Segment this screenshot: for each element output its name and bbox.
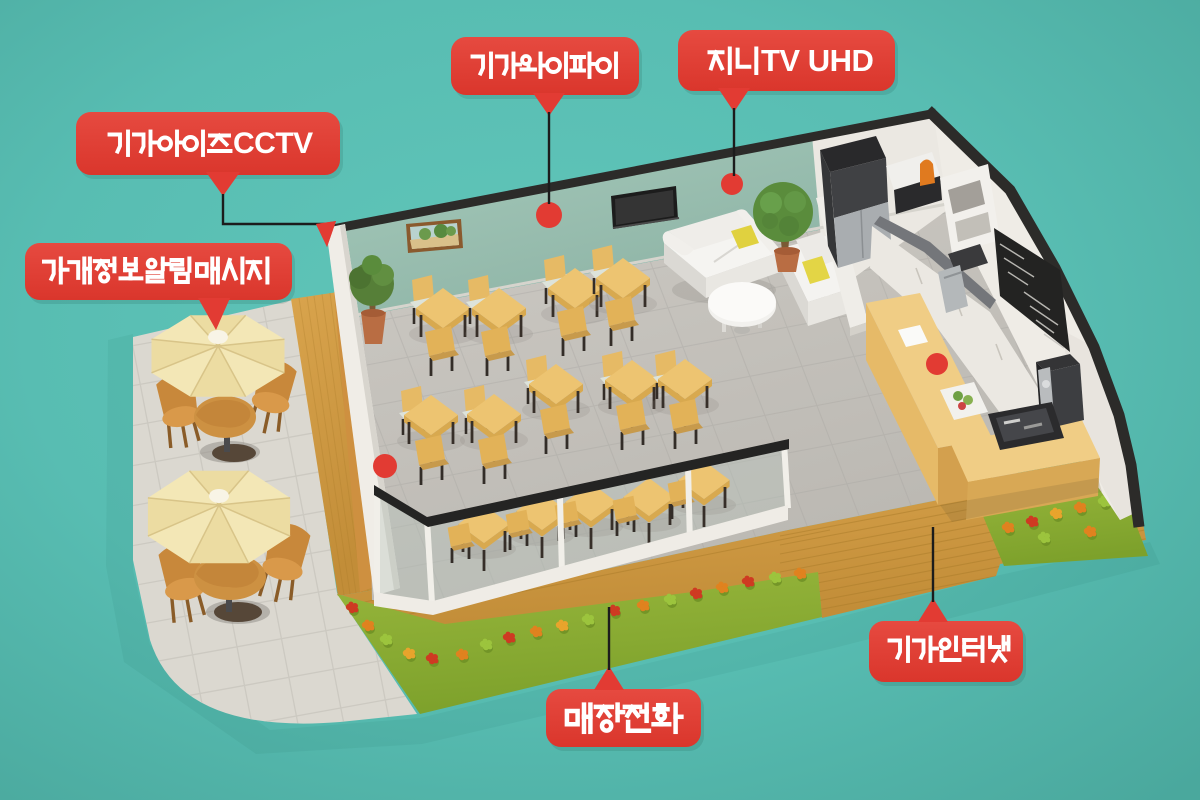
svg-text:CCTV: CCTV (233, 127, 313, 160)
svg-text:TV UHD: TV UHD (761, 43, 874, 78)
